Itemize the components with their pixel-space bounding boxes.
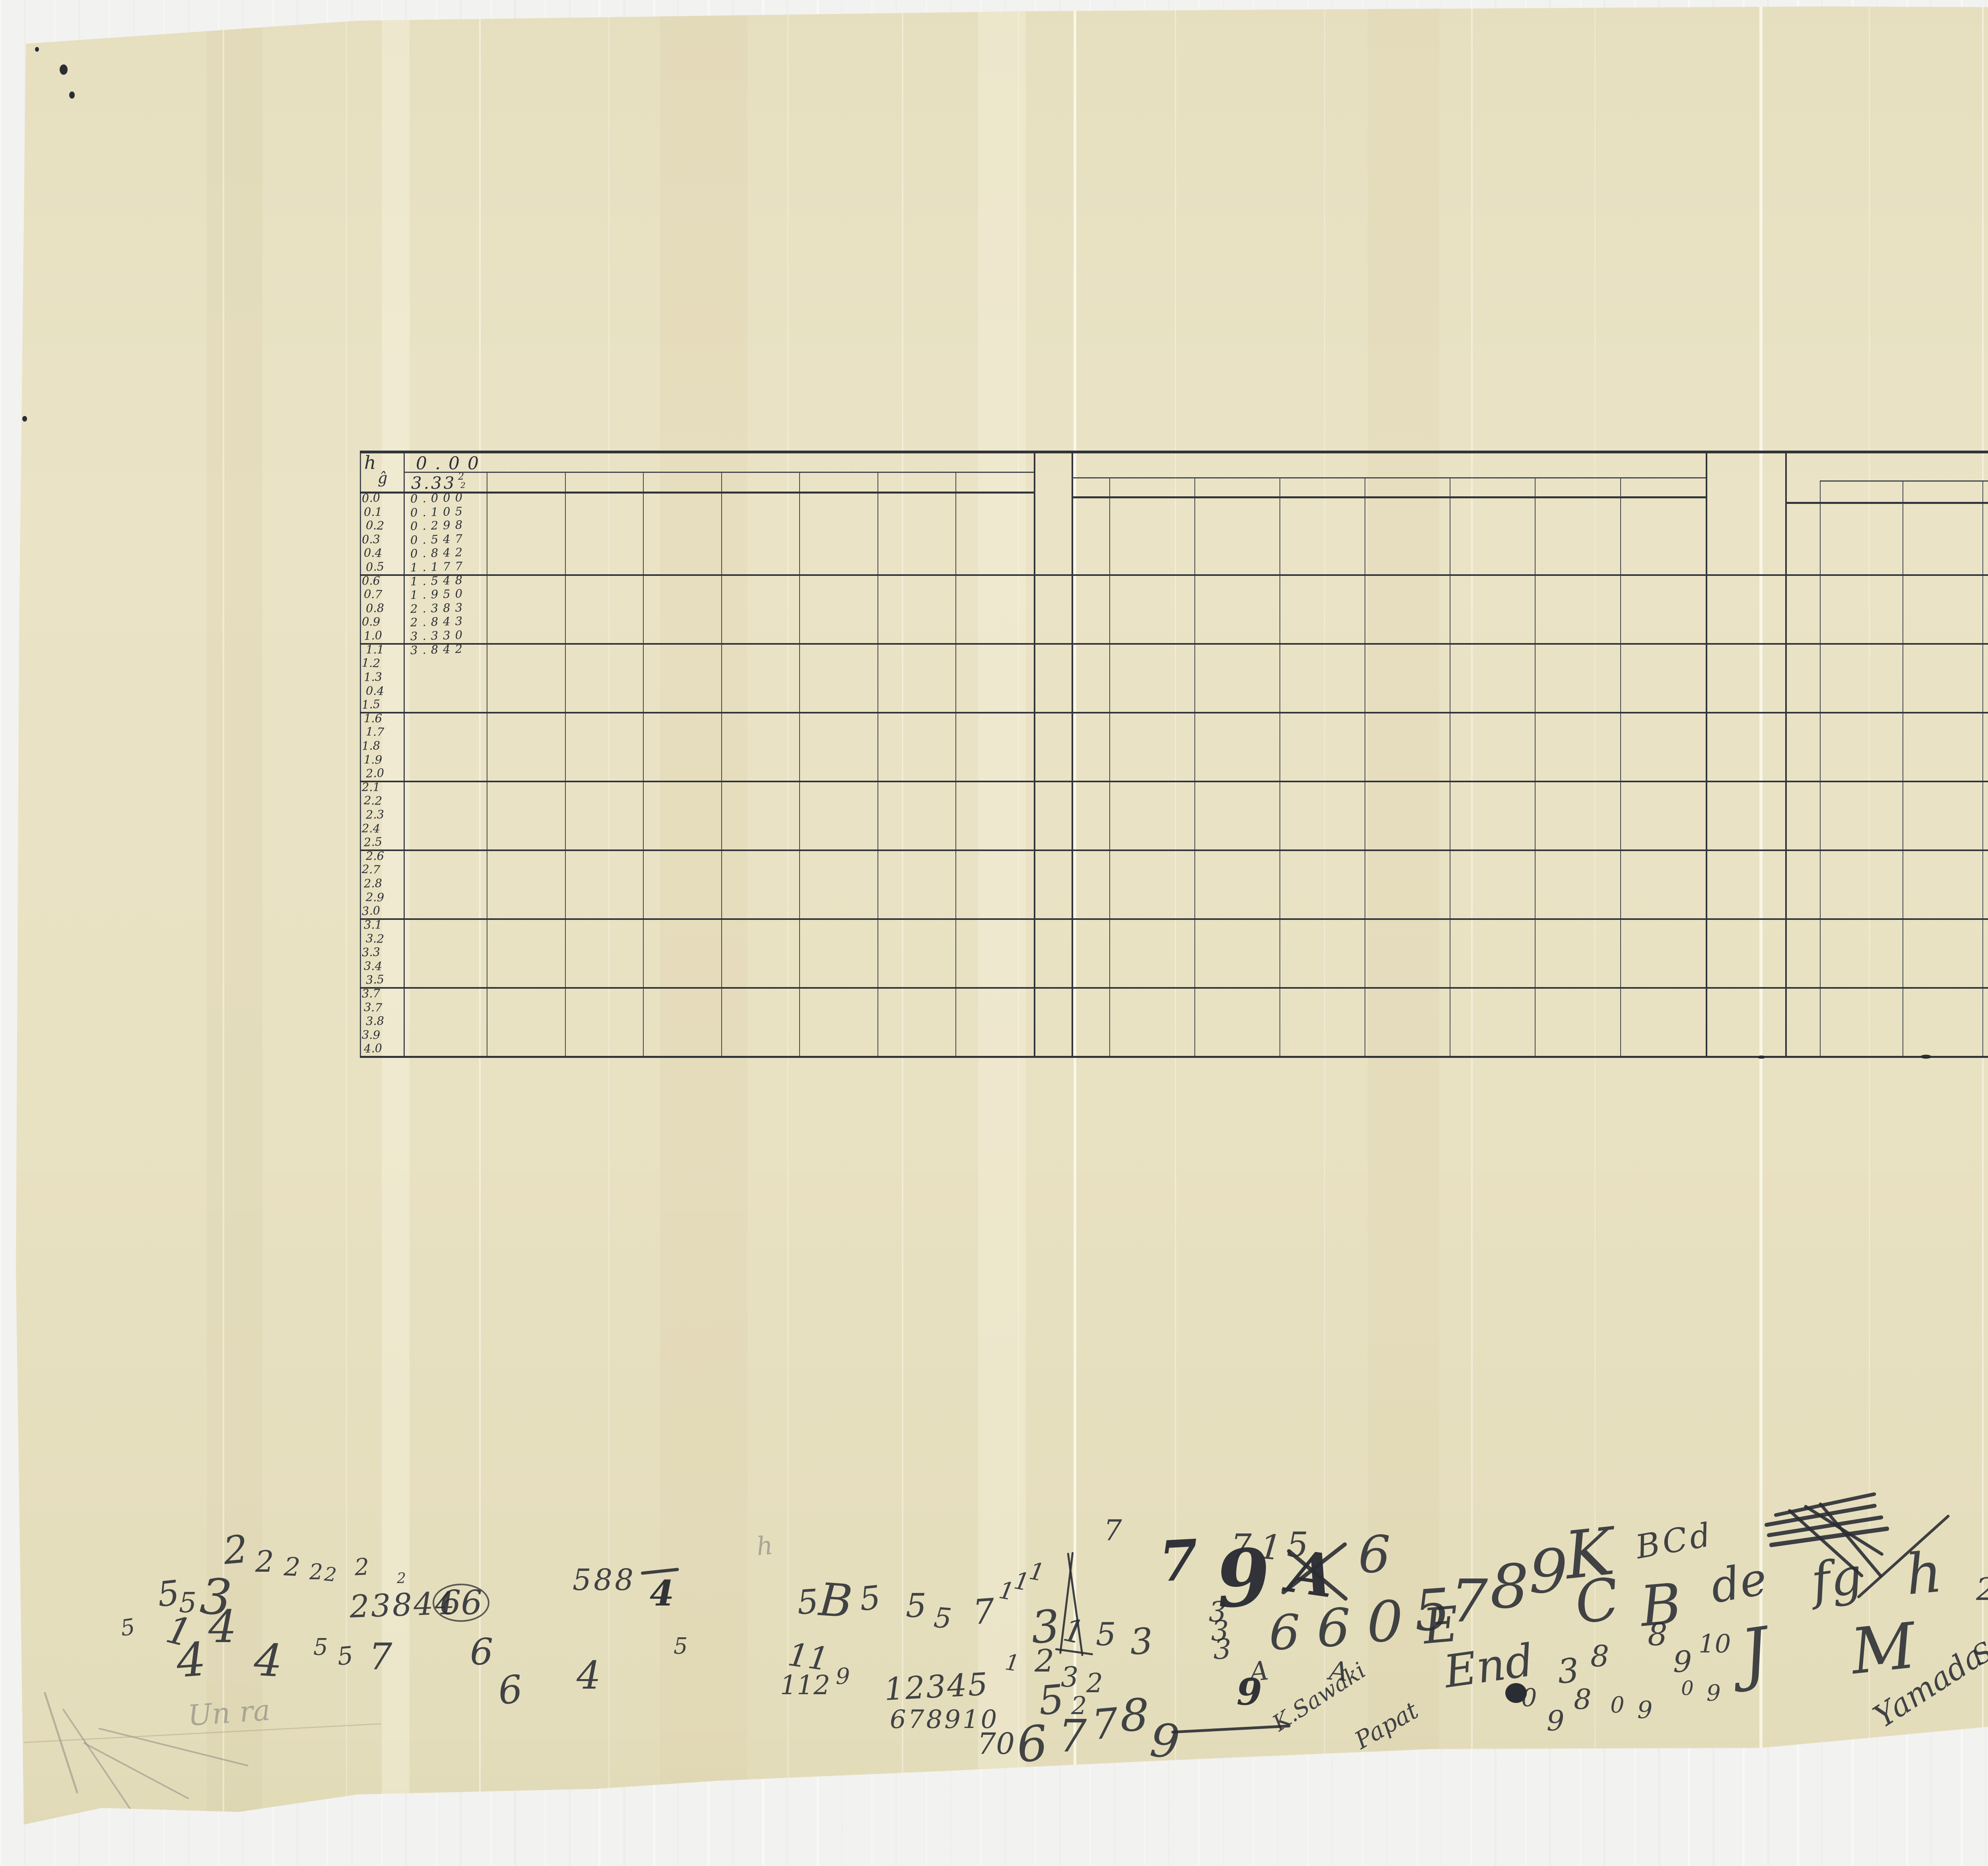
table-grid-line <box>360 712 1988 713</box>
scribble-text: 222 <box>1976 1574 1988 1605</box>
scribble-text: E <box>1421 1600 1460 1651</box>
scribble-text: 9 <box>1673 1647 1692 1677</box>
row-label: 3.5 <box>365 974 384 986</box>
row-label: 3.3 <box>362 947 381 958</box>
table-grid-line <box>360 574 1988 576</box>
ink-stroke <box>1171 1724 1291 1734</box>
scribble-text: 7 <box>1104 1516 1122 1545</box>
row-label: 0.4 <box>366 685 384 697</box>
cell-value: 2.843 <box>410 615 468 628</box>
cell-value: 2.383 <box>410 602 468 615</box>
scribble-text: 6 <box>496 1670 524 1710</box>
scribble-text: 2 <box>1086 1670 1103 1697</box>
row-label: 1.5 <box>361 698 380 711</box>
cell-value: 3.330 <box>410 629 468 642</box>
ink-dot <box>1757 1055 1765 1059</box>
scribble-text: 2 <box>222 1530 249 1570</box>
table-corner-symbol-h: h <box>364 452 376 473</box>
row-label: 1.9 <box>364 754 382 766</box>
ink-dot <box>22 416 27 422</box>
scribble-text: 5 <box>933 1604 953 1633</box>
row-label: 3.4 <box>364 960 382 972</box>
scribble-text: 3 <box>1129 1623 1154 1660</box>
table-grid-line <box>1109 478 1110 1057</box>
table-grid-line <box>360 918 1988 920</box>
scan-streak <box>787 0 788 1866</box>
row-label: 0.8 <box>366 602 384 614</box>
scribble-text: 2 <box>354 1555 370 1579</box>
ink-stroke <box>83 1742 189 1799</box>
scribble-text: B <box>817 1577 854 1625</box>
scribble-text: 9 <box>1237 1674 1262 1710</box>
table-grid-line <box>643 472 644 1057</box>
scribble-text: 5 <box>906 1590 926 1623</box>
row-label: 1.7 <box>365 726 384 738</box>
scribble-text: i8. <box>1323 1752 1351 1777</box>
row-label: 0.9 <box>362 616 381 628</box>
table-grid-line <box>799 472 800 1057</box>
table-grid-line <box>1785 502 1988 504</box>
table-grid-line <box>1365 478 1365 1057</box>
scribble-text: 6 <box>470 1634 493 1670</box>
row-label: 0.5 <box>365 561 384 573</box>
table-header-row2: 3.33 <box>411 473 456 493</box>
scribble-text: 7 <box>1158 1532 1200 1590</box>
row-label: 1.1 <box>366 644 384 655</box>
table-grid-line <box>1903 481 1903 1057</box>
cell-value: 0.298 <box>410 519 468 532</box>
row-label: 0.0 <box>361 492 380 504</box>
row-label: 3.9 <box>362 1029 381 1041</box>
row-label: 0.1 <box>364 506 382 518</box>
cell-value: 0.547 <box>410 533 468 546</box>
row-label: 0.6 <box>362 575 380 587</box>
scribble-text: 2 <box>324 1565 338 1584</box>
scribble-text: 5 <box>796 1584 819 1619</box>
table-grid-line <box>1194 478 1195 1057</box>
table-header-row2-sub: 2 <box>460 480 466 490</box>
cell-value: 1.548 <box>410 574 468 587</box>
table-grid-line <box>404 472 1034 473</box>
scribble-text: 9 <box>1529 1541 1568 1602</box>
table-grid-line <box>360 987 1988 989</box>
row-label: 2.1 <box>362 781 380 793</box>
scribble-text: fg <box>1808 1550 1866 1607</box>
scribble-text: 0 <box>1681 1678 1694 1698</box>
scribble-text: 0 <box>1610 1694 1625 1716</box>
row-label: 1.6 <box>364 713 382 724</box>
scribble-text: 6 <box>1358 1530 1390 1580</box>
ink-dot <box>60 64 68 75</box>
scribble-text: 8 <box>1590 1642 1609 1671</box>
table-grid-line <box>1982 481 1983 1057</box>
table-grid-line <box>1034 451 1035 1057</box>
scribble-text: 4 <box>253 1638 283 1684</box>
ink-dot <box>69 91 75 99</box>
scanned-page: { "page": { "number": "141" }, "table": … <box>0 0 1988 1866</box>
row-label: 2.8 <box>364 878 382 890</box>
scribble-text: 5 <box>1096 1619 1116 1650</box>
scribble-text: 1 <box>1027 1559 1046 1585</box>
table-header-row1: 0.00 <box>416 453 487 474</box>
row-label: 1.3 <box>364 671 382 683</box>
row-label: 3.2 <box>365 933 384 945</box>
scribble-text: M <box>1848 1614 1918 1683</box>
row-label: 2.5 <box>363 836 382 848</box>
scribble-text: 3 <box>1213 1635 1231 1663</box>
scribble-text: 5 <box>336 1643 354 1669</box>
row-label: 3.7 <box>362 988 380 999</box>
row-label: 3.7 <box>363 1001 382 1014</box>
scribble-text: 5 <box>119 1616 136 1640</box>
row-label: 2.9 <box>366 891 384 903</box>
scribble-text: 0 <box>1367 1594 1403 1650</box>
scribble-text: de <box>1707 1556 1770 1610</box>
row-label: 0.7 <box>363 588 382 601</box>
table-grid-line <box>955 472 956 1057</box>
scribble-text: 2 <box>1035 1646 1054 1677</box>
scribble-text: 6 <box>1015 1718 1050 1769</box>
scribble-text: 9 <box>836 1666 850 1688</box>
scribble-text: Un ra <box>187 1696 271 1730</box>
scribble-text: 5 <box>858 1582 882 1616</box>
cell-value: 0.105 <box>410 505 468 519</box>
row-label: 3.1 <box>364 919 382 931</box>
scribble-text: h <box>755 1533 774 1559</box>
ink-dot <box>1505 1683 1527 1703</box>
ink-stroke <box>62 1709 131 1810</box>
scribble-text: 2 <box>397 1572 406 1586</box>
scribble-text: 5 <box>156 1576 181 1612</box>
table-corner-symbol-g: ĝ <box>378 469 387 487</box>
row-label: 4.0 <box>363 1042 382 1055</box>
scribble-text: 4 <box>208 1605 237 1649</box>
cell-value: 3.842 <box>410 643 468 656</box>
scribble-text: 3 <box>1556 1653 1580 1688</box>
row-label: 0.2 <box>365 519 384 532</box>
cell-value: 0.000 <box>410 492 468 505</box>
scribble-text: 7 <box>972 1594 996 1630</box>
scan-streak <box>346 0 347 1866</box>
row-label: 1.2 <box>361 657 380 669</box>
scribble-text: 7 <box>1090 1702 1120 1745</box>
row-label: 2.3 <box>366 809 384 821</box>
row-label: 2.6 <box>366 850 384 862</box>
scribble-text: 66 <box>433 1584 489 1622</box>
table-grid-line <box>878 472 878 1057</box>
scribble-text: 2 <box>255 1547 274 1576</box>
ink-stroke <box>44 1692 79 1794</box>
scribble-text: 10 <box>1699 1631 1731 1657</box>
row-label: 1.8 <box>362 740 381 752</box>
ink-dot <box>1920 1055 1932 1059</box>
scribble-text: 4 <box>650 1576 674 1611</box>
table-grid-line <box>360 451 1988 453</box>
row-label: 3.8 <box>366 1015 384 1027</box>
table-grid-line <box>1072 496 1706 498</box>
row-label: 3.0 <box>361 905 380 917</box>
scribble-text: 9 <box>1148 1717 1182 1766</box>
scribble-text: 5 <box>674 1635 688 1658</box>
scribble-text: 3 <box>1061 1663 1079 1691</box>
scribble-text: J <box>1737 1618 1773 1688</box>
table-grid-line <box>360 849 1988 851</box>
table-grid-line <box>1820 480 1988 482</box>
cell-value: 0.842 <box>410 546 468 560</box>
cell-value: 1.950 <box>410 588 468 601</box>
scribble-text: 9 <box>1637 1698 1652 1722</box>
scan-streak <box>902 0 903 1866</box>
ink-dot <box>35 47 39 52</box>
scribble-text: B <box>1638 1576 1684 1635</box>
row-label: 2.2 <box>363 795 382 807</box>
table-grid-line <box>1785 451 1787 1057</box>
scribble-text: 7 <box>1058 1714 1087 1759</box>
scribble-text: 6 <box>1317 1602 1350 1654</box>
row-label: 2.0 <box>365 767 384 779</box>
scribble-text: 12345 <box>883 1669 990 1705</box>
scribble-text: 4 <box>175 1637 208 1685</box>
scribble-text: 8 <box>1490 1557 1529 1617</box>
scribble-text: 2 <box>283 1554 301 1580</box>
row-label: 2.4 <box>362 822 381 834</box>
row-label: 1.0 <box>363 630 382 642</box>
row-label: 0.3 <box>362 533 381 545</box>
row-label: 2.7 <box>361 864 380 876</box>
scribble-text: 112 <box>780 1672 830 1699</box>
scribble-text: K.Sawaki <box>1269 1659 1369 1735</box>
scribble-text: 70 <box>977 1729 1015 1759</box>
scan-streak <box>1074 0 1076 1866</box>
table-grid-line <box>1072 451 1073 1057</box>
table-grid-line <box>360 451 361 1057</box>
cell-value: 1.177 <box>410 560 468 573</box>
table-grid-line <box>1706 451 1707 1057</box>
scribble-text: BCd <box>1633 1518 1715 1564</box>
scribble-text: h <box>1904 1545 1944 1603</box>
scribble-text: 588 <box>573 1565 636 1595</box>
table-grid-line <box>1620 478 1621 1057</box>
scribble-text: C <box>1571 1570 1623 1633</box>
table-grid-line <box>360 643 1988 645</box>
table-grid-line <box>487 472 487 1057</box>
scribble-text: 8 <box>1120 1693 1149 1738</box>
table-grid-line <box>360 1056 1988 1058</box>
table-grid-line <box>721 472 722 1057</box>
table-grid-line <box>1279 478 1280 1057</box>
table-grid-line <box>1450 478 1450 1057</box>
table-grid-line <box>1072 477 1706 478</box>
table-grid-line <box>1820 481 1821 1057</box>
row-label: 0.4 <box>364 547 382 559</box>
scribble-text: 5 <box>313 1635 328 1658</box>
scribble-text: 6 <box>1269 1608 1300 1657</box>
table-grid-line <box>1535 478 1536 1057</box>
scribble-text: 2 <box>309 1561 323 1583</box>
scribble-text: 7 <box>369 1639 392 1675</box>
table-grid-line <box>565 472 566 1057</box>
table-grid-line <box>360 781 1988 782</box>
paper-sheet: h ĝ 0.00 3.33 2 2 0.00.0000.10.1050.20.2… <box>0 0 1988 1866</box>
scribble-text: 9 <box>1547 1707 1565 1735</box>
scribble-text: 4 <box>577 1656 601 1695</box>
scribble-text: 9 <box>1213 1538 1273 1619</box>
table-grid-line <box>404 451 405 1057</box>
scribble-text: 9 <box>1706 1682 1721 1705</box>
scribble-text: A <box>1285 1541 1338 1606</box>
